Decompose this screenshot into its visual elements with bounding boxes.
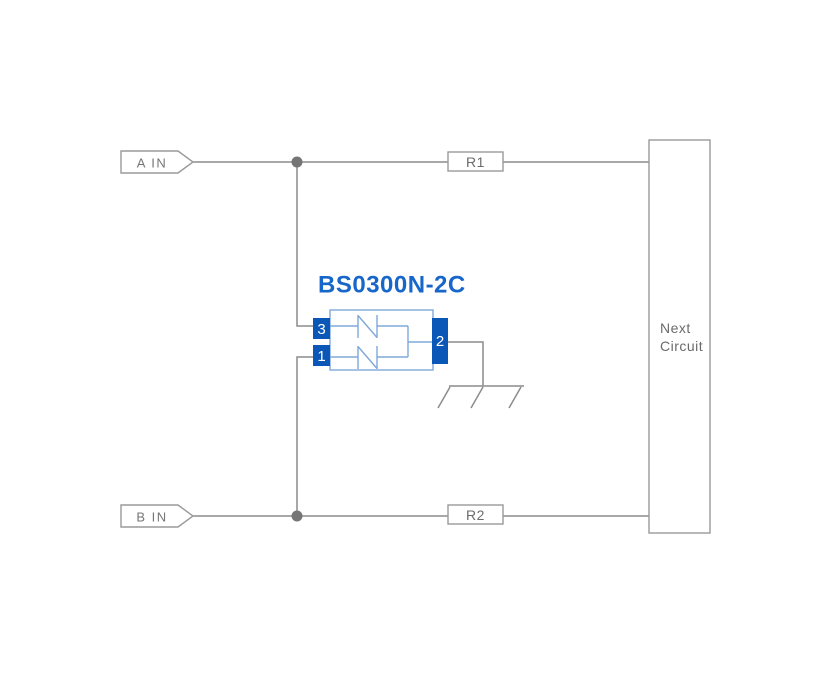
component-title: BS0300N-2C — [318, 272, 466, 299]
input-tag-a: A IN — [121, 151, 193, 173]
next-circuit-label-line2: Circuit — [660, 338, 703, 354]
next-circuit-block: Next Circuit — [649, 140, 710, 533]
input-b-label: B IN — [136, 510, 167, 525]
input-a-label: A IN — [137, 156, 168, 171]
protection-component: BS0300N-2C 3 1 — [313, 272, 466, 371]
ground-hatch-left — [438, 387, 450, 408]
next-circuit-label-line1: Next — [660, 320, 691, 336]
next-circuit-box — [649, 140, 710, 533]
resistor-r2: R2 — [448, 505, 503, 524]
pin-2-number: 2 — [436, 333, 444, 350]
pin-3: 3 — [313, 318, 330, 339]
ground-icon — [438, 386, 524, 408]
pin-1-number: 1 — [317, 348, 325, 365]
ground-hatch-right — [509, 387, 521, 408]
wire-pin2-to-ground — [448, 342, 483, 386]
pin-1: 1 — [313, 345, 330, 366]
resistor-r1: R1 — [448, 152, 503, 171]
component-outline-box — [330, 310, 433, 370]
junction-dot-icon — [292, 511, 303, 522]
resistor-r1-label: R1 — [466, 154, 485, 170]
wire-junction-a-to-pin3 — [297, 162, 313, 326]
junction-dot-icon — [292, 157, 303, 168]
wire-pin1-to-junction-b — [297, 357, 313, 516]
input-tag-b: B IN — [121, 505, 193, 527]
resistor-r2-label: R2 — [466, 507, 485, 523]
circuit-schematic: R1 R2 Next Circuit A IN B IN BS0300N-2C — [0, 0, 832, 675]
schematic-canvas: R1 R2 Next Circuit A IN B IN BS0300N-2C — [0, 0, 832, 675]
pin-2: 2 — [432, 318, 448, 364]
ground-hatch-middle — [471, 387, 483, 408]
pin-3-number: 3 — [317, 321, 325, 338]
